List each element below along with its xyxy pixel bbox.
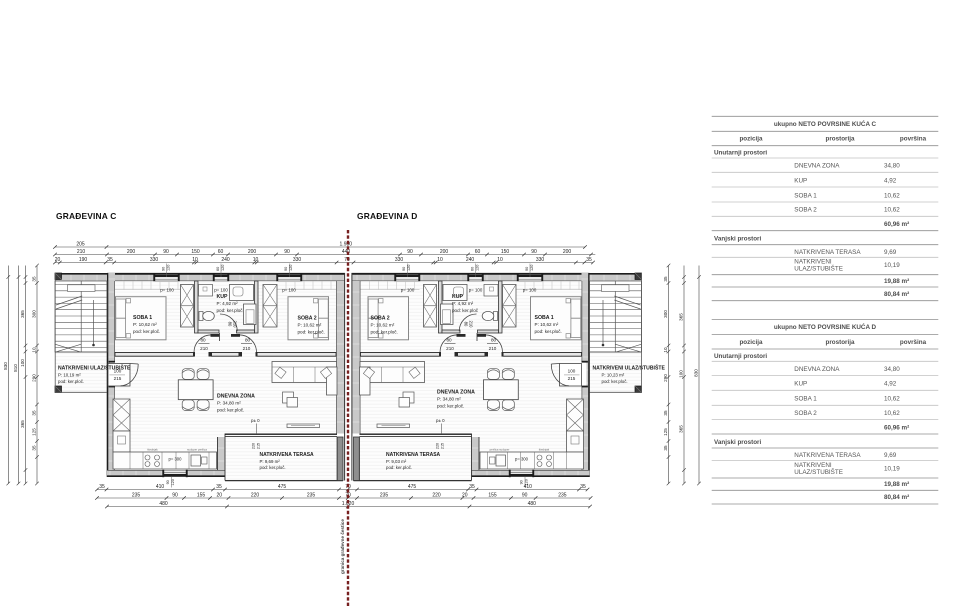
svg-text:60: 60 [216,267,220,271]
svg-text:90: 90 [284,267,288,271]
svg-text:ukupno NETO POVRSINE KUĆA D: ukupno NETO POVRSINE KUĆA D [774,322,877,331]
svg-text:ULAZ/STUBIŠTE: ULAZ/STUBIŠTE [794,467,843,476]
svg-text:210: 210 [243,346,251,351]
svg-text:P: 4,92 m²: P: 4,92 m² [217,301,239,306]
svg-text:Vanjski prostori: Vanjski prostori [714,236,761,243]
svg-text:pod: ker.ploč.: pod: ker.ploč. [133,329,160,334]
svg-text:štednjak: štednjak [539,448,550,452]
svg-text:SOBA 2: SOBA 2 [794,410,817,417]
svg-text:34,80: 34,80 [884,163,900,170]
svg-text:120: 120 [221,265,225,271]
svg-text:35: 35 [107,257,113,263]
svg-text:100: 100 [679,370,684,378]
svg-text:p= 300: p= 300 [169,456,183,461]
svg-text:100: 100 [568,369,576,374]
svg-text:10: 10 [253,257,259,263]
svg-text:120: 120 [289,265,293,271]
svg-text:125: 125 [663,428,668,436]
svg-text:površina: površina [900,136,927,143]
svg-text:80: 80 [491,338,497,343]
svg-text:830: 830 [3,362,8,370]
svg-text:Unutarnji prostori: Unutarnji prostori [714,353,767,360]
svg-text:220: 220 [251,492,260,498]
svg-text:35: 35 [580,484,586,490]
svg-text:120: 120 [407,265,411,271]
svg-text:90: 90 [407,249,413,255]
svg-text:pod: ker.ploč.: pod: ker.ploč. [371,330,398,335]
svg-text:80,84 m²: 80,84 m² [884,291,909,298]
svg-text:300: 300 [663,310,668,318]
svg-text:215: 215 [257,443,261,449]
svg-text:19,88 m²: 19,88 m² [884,481,909,488]
svg-text:35: 35 [99,484,105,490]
svg-text:215: 215 [568,376,576,381]
svg-text:P: 4,92 m²: P: 4,92 m² [452,301,474,306]
svg-text:DNEVNA ZONA: DNEVNA ZONA [794,163,840,170]
svg-text:365: 365 [20,310,25,318]
svg-text:10: 10 [663,347,668,353]
svg-text:240: 240 [221,257,230,263]
svg-text:P: 9,69 m²: P: 9,69 m² [260,459,281,464]
svg-text:215: 215 [441,443,445,449]
svg-text:NATKRIVENA TERASA: NATKRIVENA TERASA [794,452,861,459]
svg-text:p= 100: p= 100 [160,288,174,293]
svg-text:60: 60 [218,249,224,255]
svg-text:155: 155 [488,492,497,498]
svg-text:SOBA 1: SOBA 1 [535,315,554,321]
svg-text:80: 80 [464,322,469,327]
svg-text:Vanjski prostori: Vanjski prostori [714,439,761,446]
svg-text:SOBA 1: SOBA 1 [794,396,817,403]
svg-text:NATKRIVENI ULAZ/STUBIŠTE: NATKRIVENI ULAZ/STUBIŠTE [593,364,666,372]
svg-text:330: 330 [293,257,302,263]
svg-text:GRAĐEVINA D: GRAĐEVINA D [357,211,418,221]
svg-text:365: 365 [679,313,684,321]
svg-text:100: 100 [20,359,25,367]
svg-text:810: 810 [13,364,18,372]
svg-text:290: 290 [663,374,668,382]
svg-text:pod: ker.ploč.: pod: ker.ploč. [437,404,464,409]
svg-text:P: 10,62 m²: P: 10,62 m² [133,322,157,327]
svg-text:pozicija: pozicija [739,136,763,143]
svg-text:35: 35 [663,410,668,416]
svg-text:220: 220 [436,443,440,449]
svg-text:9,69: 9,69 [884,249,897,256]
svg-text:Unutarnji prostori: Unutarnji prostori [714,150,767,157]
svg-text:NATKRIVENA TERASA: NATKRIVENA TERASA [386,452,441,458]
svg-text:10: 10 [32,347,37,353]
svg-text:210: 210 [446,346,454,351]
svg-text:SOBA 1: SOBA 1 [133,315,152,321]
svg-text:DNEVNA ZONA: DNEVNA ZONA [437,390,475,396]
svg-text:ukupno NETO POVRSINE KUĆA C: ukupno NETO POVRSINE KUĆA C [774,119,877,128]
svg-text:ULAZ/STUBIŠTE: ULAZ/STUBIŠTE [794,264,843,273]
svg-text:p= 100: p= 100 [523,288,537,293]
svg-text:210: 210 [77,249,86,255]
svg-text:P: 10,23 m²: P: 10,23 m² [602,373,625,378]
svg-text:150: 150 [191,249,200,255]
svg-text:pod: ker.ploč: pod: ker.ploč [452,308,479,313]
svg-text:pod: ker.ploč.: pod: ker.ploč. [298,330,325,335]
svg-text:p= 300: p= 300 [515,456,529,461]
svg-text:90: 90 [525,267,529,271]
svg-text:KUP: KUP [794,381,807,388]
svg-text:60,96 m²: 60,96 m² [884,424,909,431]
svg-text:10: 10 [192,257,198,263]
svg-text:235: 235 [558,492,567,498]
svg-text:KUP: KUP [217,294,228,300]
svg-text:P: 34,80 m²: P: 34,80 m² [217,401,241,406]
svg-text:90: 90 [284,249,290,255]
svg-text:35: 35 [32,410,37,416]
svg-text:120: 120 [530,265,534,271]
svg-text:300: 300 [32,310,37,318]
svg-text:NATKRIVENA TERASA: NATKRIVENA TERASA [260,452,315,458]
svg-text:pod: ker.ploč.: pod: ker.ploč. [535,329,562,334]
svg-text:365: 365 [679,425,684,433]
svg-text:200: 200 [127,249,136,255]
svg-text:perilica sudoper: perilica sudoper [490,448,510,452]
svg-text:235: 235 [132,492,141,498]
svg-text:20: 20 [55,257,61,263]
svg-text:p± 0: p± 0 [251,418,260,423]
svg-text:35: 35 [586,257,592,263]
svg-text:35: 35 [32,445,37,451]
svg-text:410: 410 [524,484,533,490]
svg-text:60: 60 [470,267,474,271]
svg-text:10,62: 10,62 [884,410,900,417]
svg-text:GRAĐEVINA C: GRAĐEVINA C [56,211,117,221]
svg-text:pozicija: pozicija [739,339,763,346]
svg-text:P: 10,62 m²: P: 10,62 m² [298,323,322,328]
svg-text:480: 480 [528,501,537,507]
svg-text:150: 150 [501,249,510,255]
svg-text:4,92: 4,92 [884,177,897,184]
svg-text:pod: ker.ploč.: pod: ker.ploč. [386,465,412,470]
svg-text:90: 90 [402,267,406,271]
svg-text:200: 200 [563,249,572,255]
svg-text:19,88 m²: 19,88 m² [884,278,909,285]
svg-text:210: 210 [489,346,497,351]
svg-text:10,62: 10,62 [884,396,900,403]
svg-text:KUP: KUP [452,294,463,300]
svg-text:P: 34,80 m²: P: 34,80 m² [437,397,461,402]
svg-text:475: 475 [278,484,287,490]
svg-text:35: 35 [469,484,475,490]
svg-text:NATKRIVENI: NATKRIVENI [794,462,832,469]
svg-text:190: 190 [79,257,88,263]
svg-text:120: 120 [166,265,170,271]
svg-text:SOBA 2: SOBA 2 [371,316,390,322]
svg-text:220: 220 [252,443,256,449]
svg-text:235: 235 [380,492,389,498]
svg-text:90: 90 [522,492,528,498]
svg-text:P: 10,62 m²: P: 10,62 m² [535,322,559,327]
svg-text:SOBA 1: SOBA 1 [794,192,817,199]
svg-text:120: 120 [475,265,479,271]
svg-text:10,62: 10,62 [884,192,900,199]
svg-text:410: 410 [156,484,165,490]
svg-text:površina: površina [900,339,927,346]
svg-text:pod: ker.ploč: pod: ker.ploč [217,308,244,313]
svg-text:P: 9,03 m²: P: 9,03 m² [386,459,407,464]
svg-text:p= 100: p= 100 [401,288,415,293]
svg-text:pod: ker.ploč.: pod: ker.ploč. [260,465,286,470]
svg-text:125: 125 [32,428,37,436]
svg-text:NATKRIVENI: NATKRIVENI [794,259,832,266]
svg-text:P: 10,62 m²: P: 10,62 m² [371,323,395,328]
svg-text:80: 80 [245,338,251,343]
svg-text:330: 330 [150,257,159,263]
svg-text:235: 235 [307,492,316,498]
svg-text:90: 90 [172,492,178,498]
svg-text:DNEVNA ZONA: DNEVNA ZONA [794,366,840,373]
svg-text:P: 10,19 m²: P: 10,19 m² [58,373,81,378]
svg-text:p± 0: p± 0 [436,418,445,423]
svg-text:205: 205 [76,241,85,247]
svg-text:10,19: 10,19 [884,466,900,473]
svg-text:90: 90 [161,267,165,271]
svg-text:20: 20 [217,492,223,498]
svg-text:sudoper perilica: sudoper perilica [187,448,207,452]
svg-text:p= 100: p= 100 [214,288,228,293]
svg-text:35: 35 [216,484,222,490]
svg-text:90: 90 [166,480,170,484]
svg-text:60: 60 [475,249,481,255]
svg-text:20: 20 [462,492,468,498]
svg-text:330: 330 [395,257,404,263]
svg-text:prostorija: prostorija [825,339,855,346]
svg-text:155: 155 [197,492,206,498]
svg-text:80: 80 [200,338,206,343]
svg-text:34,80: 34,80 [884,366,900,373]
svg-text:KUP: KUP [794,177,807,184]
svg-text:200: 200 [440,249,449,255]
svg-text:240: 240 [466,257,475,263]
svg-text:830: 830 [694,369,699,377]
svg-text:p= 100: p= 100 [282,288,296,293]
svg-text:330: 330 [536,257,545,263]
svg-text:290: 290 [32,374,37,382]
svg-text:365: 365 [20,420,25,428]
svg-text:pod: ker.ploč.: pod: ker.ploč. [217,408,244,413]
svg-text:90: 90 [163,249,169,255]
svg-text:NATKRIVENI ULAZ/STUBIŠTE: NATKRIVENI ULAZ/STUBIŠTE [58,364,131,372]
svg-text:pod: ker.ploč.: pod: ker.ploč. [602,379,628,384]
svg-text:9,69: 9,69 [884,452,897,459]
svg-text:480: 480 [159,501,168,507]
svg-text:475: 475 [408,484,417,490]
svg-text:prostorija: prostorija [825,136,855,143]
svg-text:štednjak: štednjak [147,448,158,452]
svg-text:90: 90 [531,249,537,255]
svg-text:SOBA 2: SOBA 2 [794,207,817,214]
svg-text:1.980: 1.980 [340,241,353,247]
svg-text:200: 200 [248,249,257,255]
svg-text:SOBA 2: SOBA 2 [298,316,317,322]
svg-text:p= 100: p= 100 [469,288,483,293]
svg-text:granica građevne čestice: granica građevne čestice [340,519,345,574]
svg-text:210: 210 [469,321,474,329]
svg-text:80,84 m²: 80,84 m² [884,494,909,501]
svg-text:NATKRIVENA TERASA: NATKRIVENA TERASA [794,249,861,256]
svg-text:10,19: 10,19 [884,262,900,269]
svg-text:215: 215 [114,376,122,381]
svg-text:80: 80 [227,322,232,327]
svg-text:220: 220 [432,492,441,498]
svg-text:35: 35 [663,276,668,282]
svg-text:60,96 m²: 60,96 m² [884,221,909,228]
svg-text:210: 210 [232,321,237,329]
svg-text:10: 10 [497,257,503,263]
svg-text:10,62: 10,62 [884,207,900,214]
svg-text:35: 35 [663,445,668,451]
svg-text:pod: ker.ploč.: pod: ker.ploč. [58,379,84,384]
svg-text:4,92: 4,92 [884,381,897,388]
svg-text:80: 80 [446,338,452,343]
svg-text:35: 35 [32,276,37,282]
svg-text:10: 10 [437,257,443,263]
svg-text:210: 210 [200,346,208,351]
svg-text:DNEVNA ZONA: DNEVNA ZONA [217,394,255,400]
